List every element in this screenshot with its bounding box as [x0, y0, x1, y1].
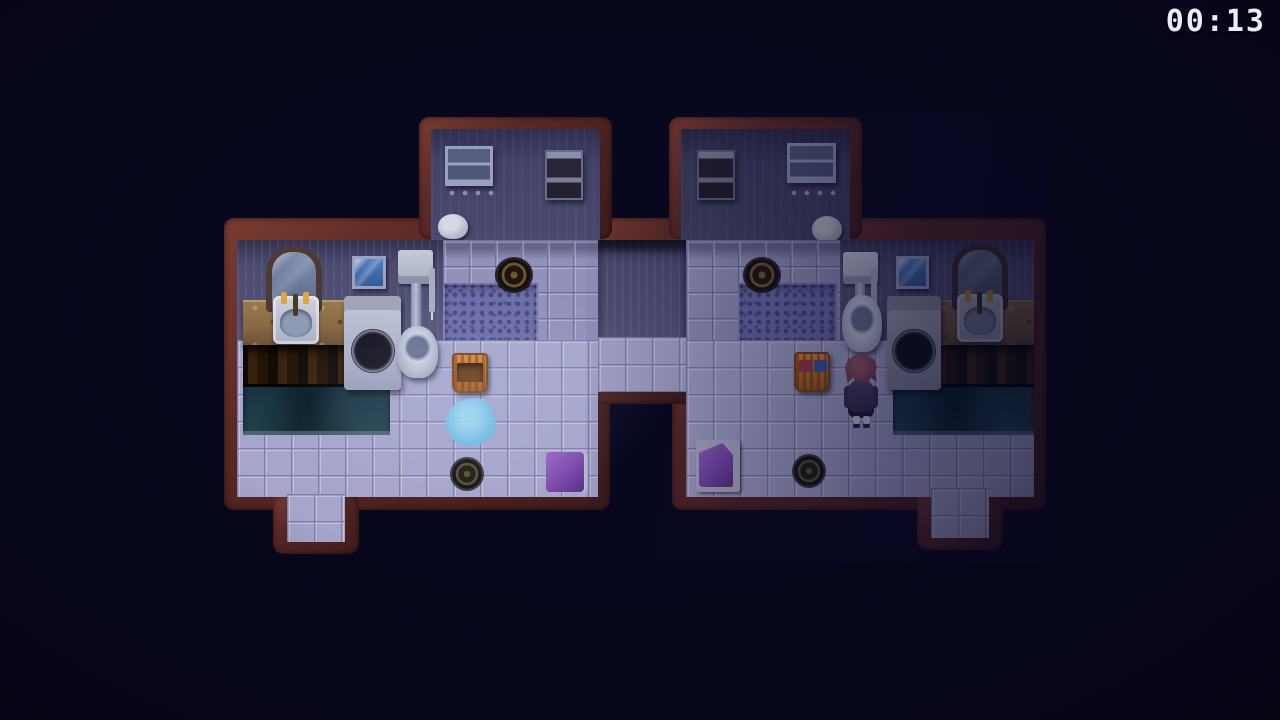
game-viewport[interactable]: 00:13	[0, 0, 1280, 720]
blue-towel	[814, 360, 827, 372]
washer-door	[892, 329, 936, 373]
faucet-right-knob	[303, 292, 309, 304]
washing-machine-right	[887, 296, 941, 390]
purple-bath-mat-left	[546, 452, 584, 492]
laundry-bag-left	[438, 214, 468, 239]
red-towel	[799, 360, 812, 372]
faucet-right-knob	[987, 290, 993, 302]
towel-shelf-left	[445, 146, 493, 186]
floor-drain-right	[794, 456, 824, 486]
washer-door	[351, 329, 395, 373]
mosaic-panel-left	[443, 283, 538, 342]
corridor-pillar-wall	[598, 240, 686, 339]
vanity-sink-right	[957, 294, 1003, 342]
supply-cabinet-left	[545, 150, 583, 200]
faucet-left-knob	[965, 290, 971, 302]
toilet-tank-left	[398, 250, 433, 284]
floor-drain-left	[452, 459, 482, 489]
water-puddle	[446, 398, 496, 446]
washing-machine-left	[344, 296, 401, 390]
player-leg-right	[863, 416, 870, 428]
wall-mirror-right	[896, 256, 929, 289]
toilet-seat	[404, 334, 430, 361]
wicker-basket-left	[452, 353, 488, 393]
towel-shelf-right	[787, 143, 836, 183]
vanity-sink-left	[273, 296, 319, 344]
wall-mirror-left	[352, 256, 386, 289]
supply-cabinet-right	[697, 150, 735, 200]
player-character	[845, 352, 877, 430]
hanging-purple-towel	[699, 443, 733, 487]
faucet-left-knob	[281, 292, 287, 304]
purple-towel-rack	[696, 440, 740, 492]
laundry-bag-right	[812, 216, 842, 242]
coat-hooks-left	[447, 189, 497, 198]
corridor-floor	[598, 337, 686, 392]
paper-holder-left	[429, 268, 435, 312]
wall-drain-grate-right	[745, 259, 779, 291]
south-exit-right	[931, 488, 989, 538]
wooden-lockers-left	[243, 345, 345, 387]
basket-inner	[457, 363, 483, 382]
faucet-spout	[293, 294, 298, 316]
wall-drain-grate-left	[497, 259, 531, 291]
south-exit-left	[287, 494, 345, 542]
timer-display: 00:13	[1166, 4, 1266, 39]
toilet-seat	[849, 304, 875, 334]
toilet-bowl-left	[397, 326, 438, 378]
mosaic-panel-right	[738, 283, 837, 342]
towel-basket-right	[794, 352, 830, 392]
player-body	[848, 380, 874, 418]
faucet-spout	[977, 292, 982, 314]
wooden-lockers-right	[932, 345, 1034, 387]
coat-hooks-right	[789, 189, 839, 198]
toilet-bowl-right	[842, 295, 882, 352]
player-leg-left	[853, 416, 860, 428]
